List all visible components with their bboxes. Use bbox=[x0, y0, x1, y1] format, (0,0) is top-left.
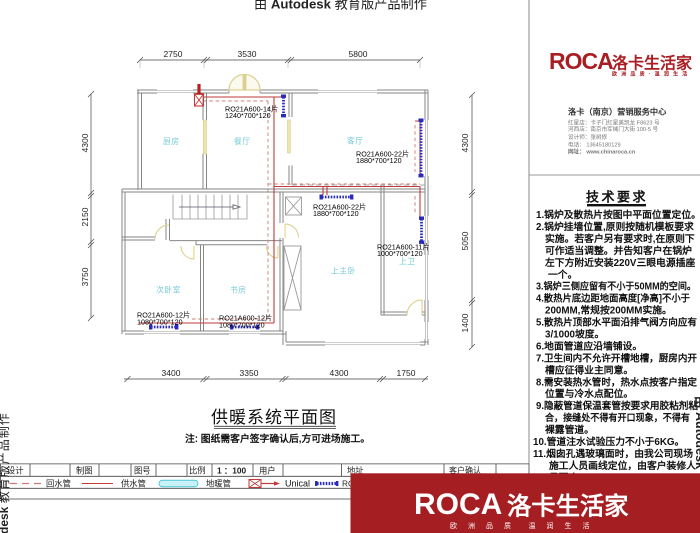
svg-text:4.散热片底边距地面高度[净高]不小于: 4.散热片底边距地面高度[净高]不小于 bbox=[536, 292, 690, 305]
svg-text:1.锅炉及散热片按图中平面位置定位。: 1.锅炉及散热片按图中平面位置定位。 bbox=[536, 208, 700, 221]
svg-text:地暖管: 地暖管 bbox=[206, 479, 231, 489]
svg-text:裸露管道。: 裸露管道。 bbox=[545, 423, 594, 436]
svg-text:上卫: 上卫 bbox=[399, 257, 416, 266]
svg-text:注: 图纸需客户签字确认后,方可进场施工。: 注: 图纸需客户签字确认后,方可进场施工。 bbox=[185, 432, 370, 445]
svg-text:5800: 5800 bbox=[349, 49, 368, 59]
svg-text:1080*700*120: 1080*700*120 bbox=[137, 318, 183, 327]
svg-text:4300: 4300 bbox=[80, 133, 90, 152]
svg-text:左下方附近安装220V三眼电源插座: 左下方附近安装220V三眼电源插座 bbox=[544, 256, 695, 269]
svg-text:1 ：100: 1 ：100 bbox=[217, 466, 246, 476]
svg-text:欧洲品质·温润生活: 欧洲品质·温润生活 bbox=[612, 71, 691, 78]
svg-text:1240*700*120: 1240*700*120 bbox=[225, 111, 271, 120]
svg-text:客厅: 客厅 bbox=[347, 136, 364, 146]
svg-text:位置与冷水点配位。: 位置与冷水点配位。 bbox=[545, 387, 633, 400]
svg-text:1400: 1400 bbox=[460, 313, 470, 332]
svg-text:3/1000坡度。: 3/1000坡度。 bbox=[545, 328, 604, 341]
svg-text:网址： www.chinaroca.cn: 网址： www.chinaroca.cn bbox=[568, 148, 636, 156]
svg-text:2150: 2150 bbox=[80, 207, 90, 226]
svg-text:4300: 4300 bbox=[330, 368, 349, 378]
svg-text:欧洲品质: 欧洲品质 bbox=[450, 521, 522, 530]
svg-text:11.烟囱孔遇玻璃面时，由我公司现场: 11.烟囱孔遇玻璃面时，由我公司现场 bbox=[533, 447, 693, 460]
svg-text:槽应征得业主同意。: 槽应征得业主同意。 bbox=[545, 363, 633, 376]
svg-text:可作适当调整。并告知客户在锅炉: 可作适当调整。并告知客户在锅炉 bbox=[545, 244, 692, 257]
svg-text:4300: 4300 bbox=[460, 133, 470, 152]
svg-text:红星店：卡子门红星美凯龙 F8623 号: 红星店：卡子门红星美凯龙 F8623 号 bbox=[568, 119, 660, 127]
svg-text:设计师：张树修: 设计师：张树修 bbox=[568, 133, 608, 141]
svg-text:2750: 2750 bbox=[164, 49, 183, 59]
svg-text:8.需安装热水管时，热水点按客户指定: 8.需安装热水管时，热水点按客户指定 bbox=[536, 375, 697, 388]
svg-text:餐厅: 餐厅 bbox=[234, 137, 251, 146]
svg-text:desk 教育版产品制作: desk 教育版产品制作 bbox=[0, 412, 11, 533]
svg-text:比例: 比例 bbox=[189, 466, 206, 476]
svg-text:1080*700*120: 1080*700*120 bbox=[219, 321, 265, 330]
svg-text:1750: 1750 bbox=[397, 368, 416, 378]
svg-text:电话： 13645180129: 电话： 13645180129 bbox=[568, 141, 621, 149]
svg-text:由 Autodesk 教育版产品制作: 由 Autodesk 教育版产品制作 bbox=[254, 0, 427, 12]
svg-text:ROCA: ROCA bbox=[549, 48, 613, 74]
svg-text:图号: 图号 bbox=[134, 466, 151, 476]
svg-text:洛卡生活家: 洛卡生活家 bbox=[612, 54, 693, 73]
svg-text:供暖系统平面图: 供暖系统平面图 bbox=[211, 408, 337, 427]
svg-text:3750: 3750 bbox=[80, 267, 90, 286]
svg-text:施工人员画线定位，由客户装修人: 施工人员画线定位，由客户装修人 bbox=[549, 459, 696, 472]
svg-text:5050: 5050 bbox=[460, 231, 470, 250]
svg-text:实施。若客户另有要求时,在原则下: 实施。若客户另有要求时,在原则下 bbox=[545, 232, 695, 245]
svg-text:合，接缝处不得有开口现象，不得有: 合，接缝处不得有开口现象，不得有 bbox=[544, 411, 690, 424]
svg-text:技术要求: 技术要求 bbox=[586, 190, 648, 205]
svg-text:次卧室: 次卧室 bbox=[156, 285, 181, 295]
svg-text:1880*700*120: 1880*700*120 bbox=[356, 156, 402, 165]
svg-text:供水管: 供水管 bbox=[121, 479, 146, 489]
svg-text:河西店：南京市军械门大街 100-5 号: 河西店：南京市军械门大街 100-5 号 bbox=[568, 125, 659, 133]
svg-text:洛卡生活家: 洛卡生活家 bbox=[507, 493, 629, 521]
svg-text:厨房: 厨房 bbox=[163, 136, 180, 146]
svg-text:6.地面管道应沿墙铺设。: 6.地面管道应沿墙铺设。 bbox=[536, 339, 642, 352]
svg-text:制图: 制图 bbox=[76, 466, 93, 476]
svg-text:Unical: Unical bbox=[285, 479, 310, 489]
svg-text:3530: 3530 bbox=[238, 49, 257, 59]
svg-text:一个。: 一个。 bbox=[548, 268, 577, 281]
svg-text:用户: 用户 bbox=[259, 466, 276, 476]
svg-text:上主卧: 上主卧 bbox=[331, 266, 356, 276]
svg-text:1880*700*120: 1880*700*120 bbox=[313, 209, 359, 218]
svg-text:2.锅炉挂墙位置,原则按随机模板要求: 2.锅炉挂墙位置,原则按随机模板要求 bbox=[536, 220, 694, 233]
svg-text:温润生活: 温润生活 bbox=[529, 521, 601, 530]
svg-text:洛卡（南京）营销服务中心: 洛卡（南京）营销服务中心 bbox=[568, 107, 667, 117]
svg-text:3400: 3400 bbox=[162, 368, 181, 378]
svg-text:1000*700*120: 1000*700*120 bbox=[377, 249, 423, 258]
svg-text:书房: 书房 bbox=[230, 285, 247, 295]
svg-text:10.管道注水试验压力不小于6KG。: 10.管道注水试验压力不小于6KG。 bbox=[533, 435, 684, 448]
svg-text:ROCA: ROCA bbox=[414, 488, 502, 521]
svg-text:3350: 3350 bbox=[240, 368, 259, 378]
svg-text:9.隐蔽管道保温套管按要求用胶粘剂粘: 9.隐蔽管道保温套管按要求用胶粘剂粘 bbox=[536, 399, 698, 412]
svg-text:200MM,常规按200MM实施。: 200MM,常规按200MM实施。 bbox=[545, 304, 672, 317]
svg-text:由 Autodesk: 由 Autodesk bbox=[693, 396, 700, 469]
svg-text:5.散热片顶部水平面沿排气阀方向应有: 5.散热片顶部水平面沿排气阀方向应有 bbox=[536, 316, 697, 329]
svg-text:7.卫生间内不允许开槽地槽，厨房内开: 7.卫生间内不允许开槽地槽，厨房内开 bbox=[536, 351, 697, 364]
svg-text:回水管: 回水管 bbox=[46, 479, 71, 489]
svg-text:3.锅炉三侧应留有不小于50MM的空间。: 3.锅炉三侧应留有不小于50MM的空间。 bbox=[536, 280, 696, 293]
